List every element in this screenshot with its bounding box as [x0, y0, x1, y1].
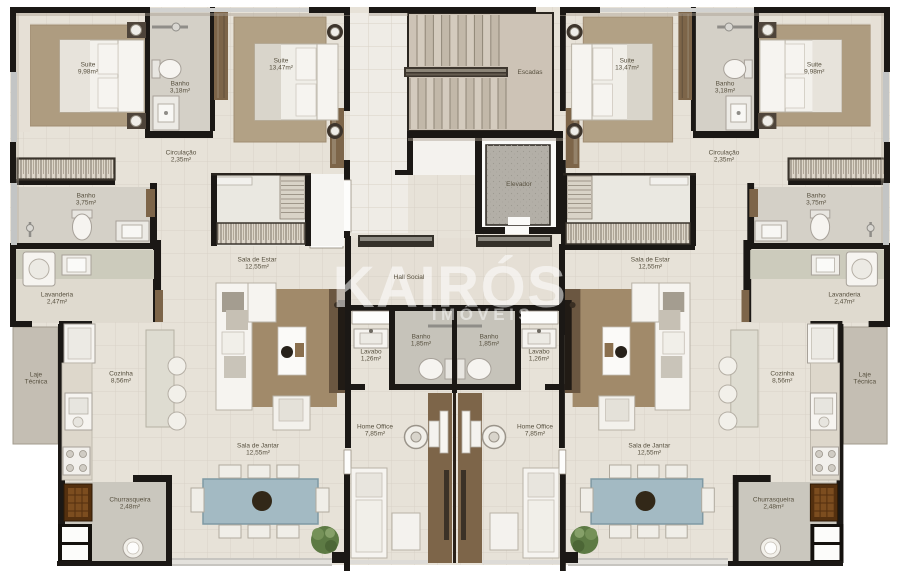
- svg-text:Suite: Suite: [620, 57, 635, 64]
- svg-text:1,85m²: 1,85m²: [479, 341, 500, 348]
- svg-text:Suite: Suite: [81, 61, 96, 68]
- svg-text:Suite: Suite: [807, 61, 822, 68]
- svg-text:Circulação: Circulação: [166, 149, 197, 156]
- svg-text:Elevador: Elevador: [506, 181, 532, 188]
- svg-text:2,48m²: 2,48m²: [120, 504, 141, 511]
- svg-text:8,56m²: 8,56m²: [772, 378, 793, 385]
- svg-text:12,55m²: 12,55m²: [637, 450, 662, 457]
- svg-text:2,47m²: 2,47m²: [47, 299, 68, 306]
- svg-text:Laje: Laje: [30, 371, 43, 378]
- svg-text:2,48m²: 2,48m²: [763, 504, 784, 511]
- svg-text:Cozinha: Cozinha: [770, 370, 794, 377]
- svg-text:Banho: Banho: [480, 333, 499, 340]
- svg-text:1,85m²: 1,85m²: [411, 341, 432, 348]
- svg-text:7,85m²: 7,85m²: [525, 431, 546, 438]
- svg-text:Home Office: Home Office: [357, 423, 393, 430]
- svg-text:Sala de Estar: Sala de Estar: [631, 256, 671, 263]
- svg-text:12,55m²: 12,55m²: [246, 450, 271, 457]
- svg-text:7,85m²: 7,85m²: [365, 431, 386, 438]
- svg-text:Banho: Banho: [807, 192, 826, 199]
- svg-text:Banho: Banho: [716, 80, 735, 87]
- svg-text:Sala de Jantar: Sala de Jantar: [237, 442, 280, 449]
- svg-text:Lavabo: Lavabo: [528, 348, 550, 355]
- svg-text:Cozinha: Cozinha: [109, 370, 133, 377]
- svg-text:Escadas: Escadas: [518, 69, 544, 76]
- svg-text:12,55m²: 12,55m²: [638, 264, 663, 271]
- svg-text:13,47m²: 13,47m²: [269, 65, 294, 72]
- svg-text:12,55m²: 12,55m²: [245, 264, 270, 271]
- svg-text:Circulação: Circulação: [709, 149, 740, 156]
- svg-text:IMÓVEIS: IMÓVEIS: [432, 305, 534, 324]
- svg-text:Técnica: Técnica: [853, 379, 876, 386]
- svg-text:Lavanderia: Lavanderia: [41, 291, 74, 298]
- svg-text:9,98m²: 9,98m²: [804, 69, 825, 76]
- svg-text:Home Office: Home Office: [517, 423, 553, 430]
- svg-text:Laje: Laje: [859, 371, 872, 378]
- svg-text:3,18m²: 3,18m²: [170, 88, 191, 95]
- svg-text:2,47m²: 2,47m²: [834, 299, 855, 306]
- svg-text:2,35m²: 2,35m²: [171, 157, 192, 164]
- svg-text:Técnica: Técnica: [25, 379, 48, 386]
- svg-text:Lavabo: Lavabo: [360, 348, 382, 355]
- svg-text:13,47m²: 13,47m²: [615, 65, 640, 72]
- svg-text:9,98m²: 9,98m²: [78, 69, 99, 76]
- svg-text:Lavanderia: Lavanderia: [828, 291, 861, 298]
- svg-text:Banho: Banho: [77, 192, 96, 199]
- svg-text:3,75m²: 3,75m²: [806, 200, 827, 207]
- svg-text:Banho: Banho: [171, 80, 190, 87]
- svg-text:Banho: Banho: [412, 333, 431, 340]
- svg-text:1,26m²: 1,26m²: [361, 356, 382, 363]
- svg-text:Suite: Suite: [274, 57, 289, 64]
- svg-text:Sala de Jantar: Sala de Jantar: [628, 442, 671, 449]
- svg-text:Churrasqueira: Churrasqueira: [109, 496, 151, 503]
- svg-text:Sala de Estar: Sala de Estar: [237, 256, 277, 263]
- svg-text:Churrasqueira: Churrasqueira: [753, 496, 795, 503]
- svg-text:Hall Social: Hall Social: [394, 274, 425, 281]
- svg-text:3,75m²: 3,75m²: [76, 200, 97, 207]
- svg-text:1,26m²: 1,26m²: [529, 356, 550, 363]
- svg-text:8,56m²: 8,56m²: [111, 378, 132, 385]
- svg-text:2,35m²: 2,35m²: [714, 157, 735, 164]
- svg-text:3,18m²: 3,18m²: [715, 88, 736, 95]
